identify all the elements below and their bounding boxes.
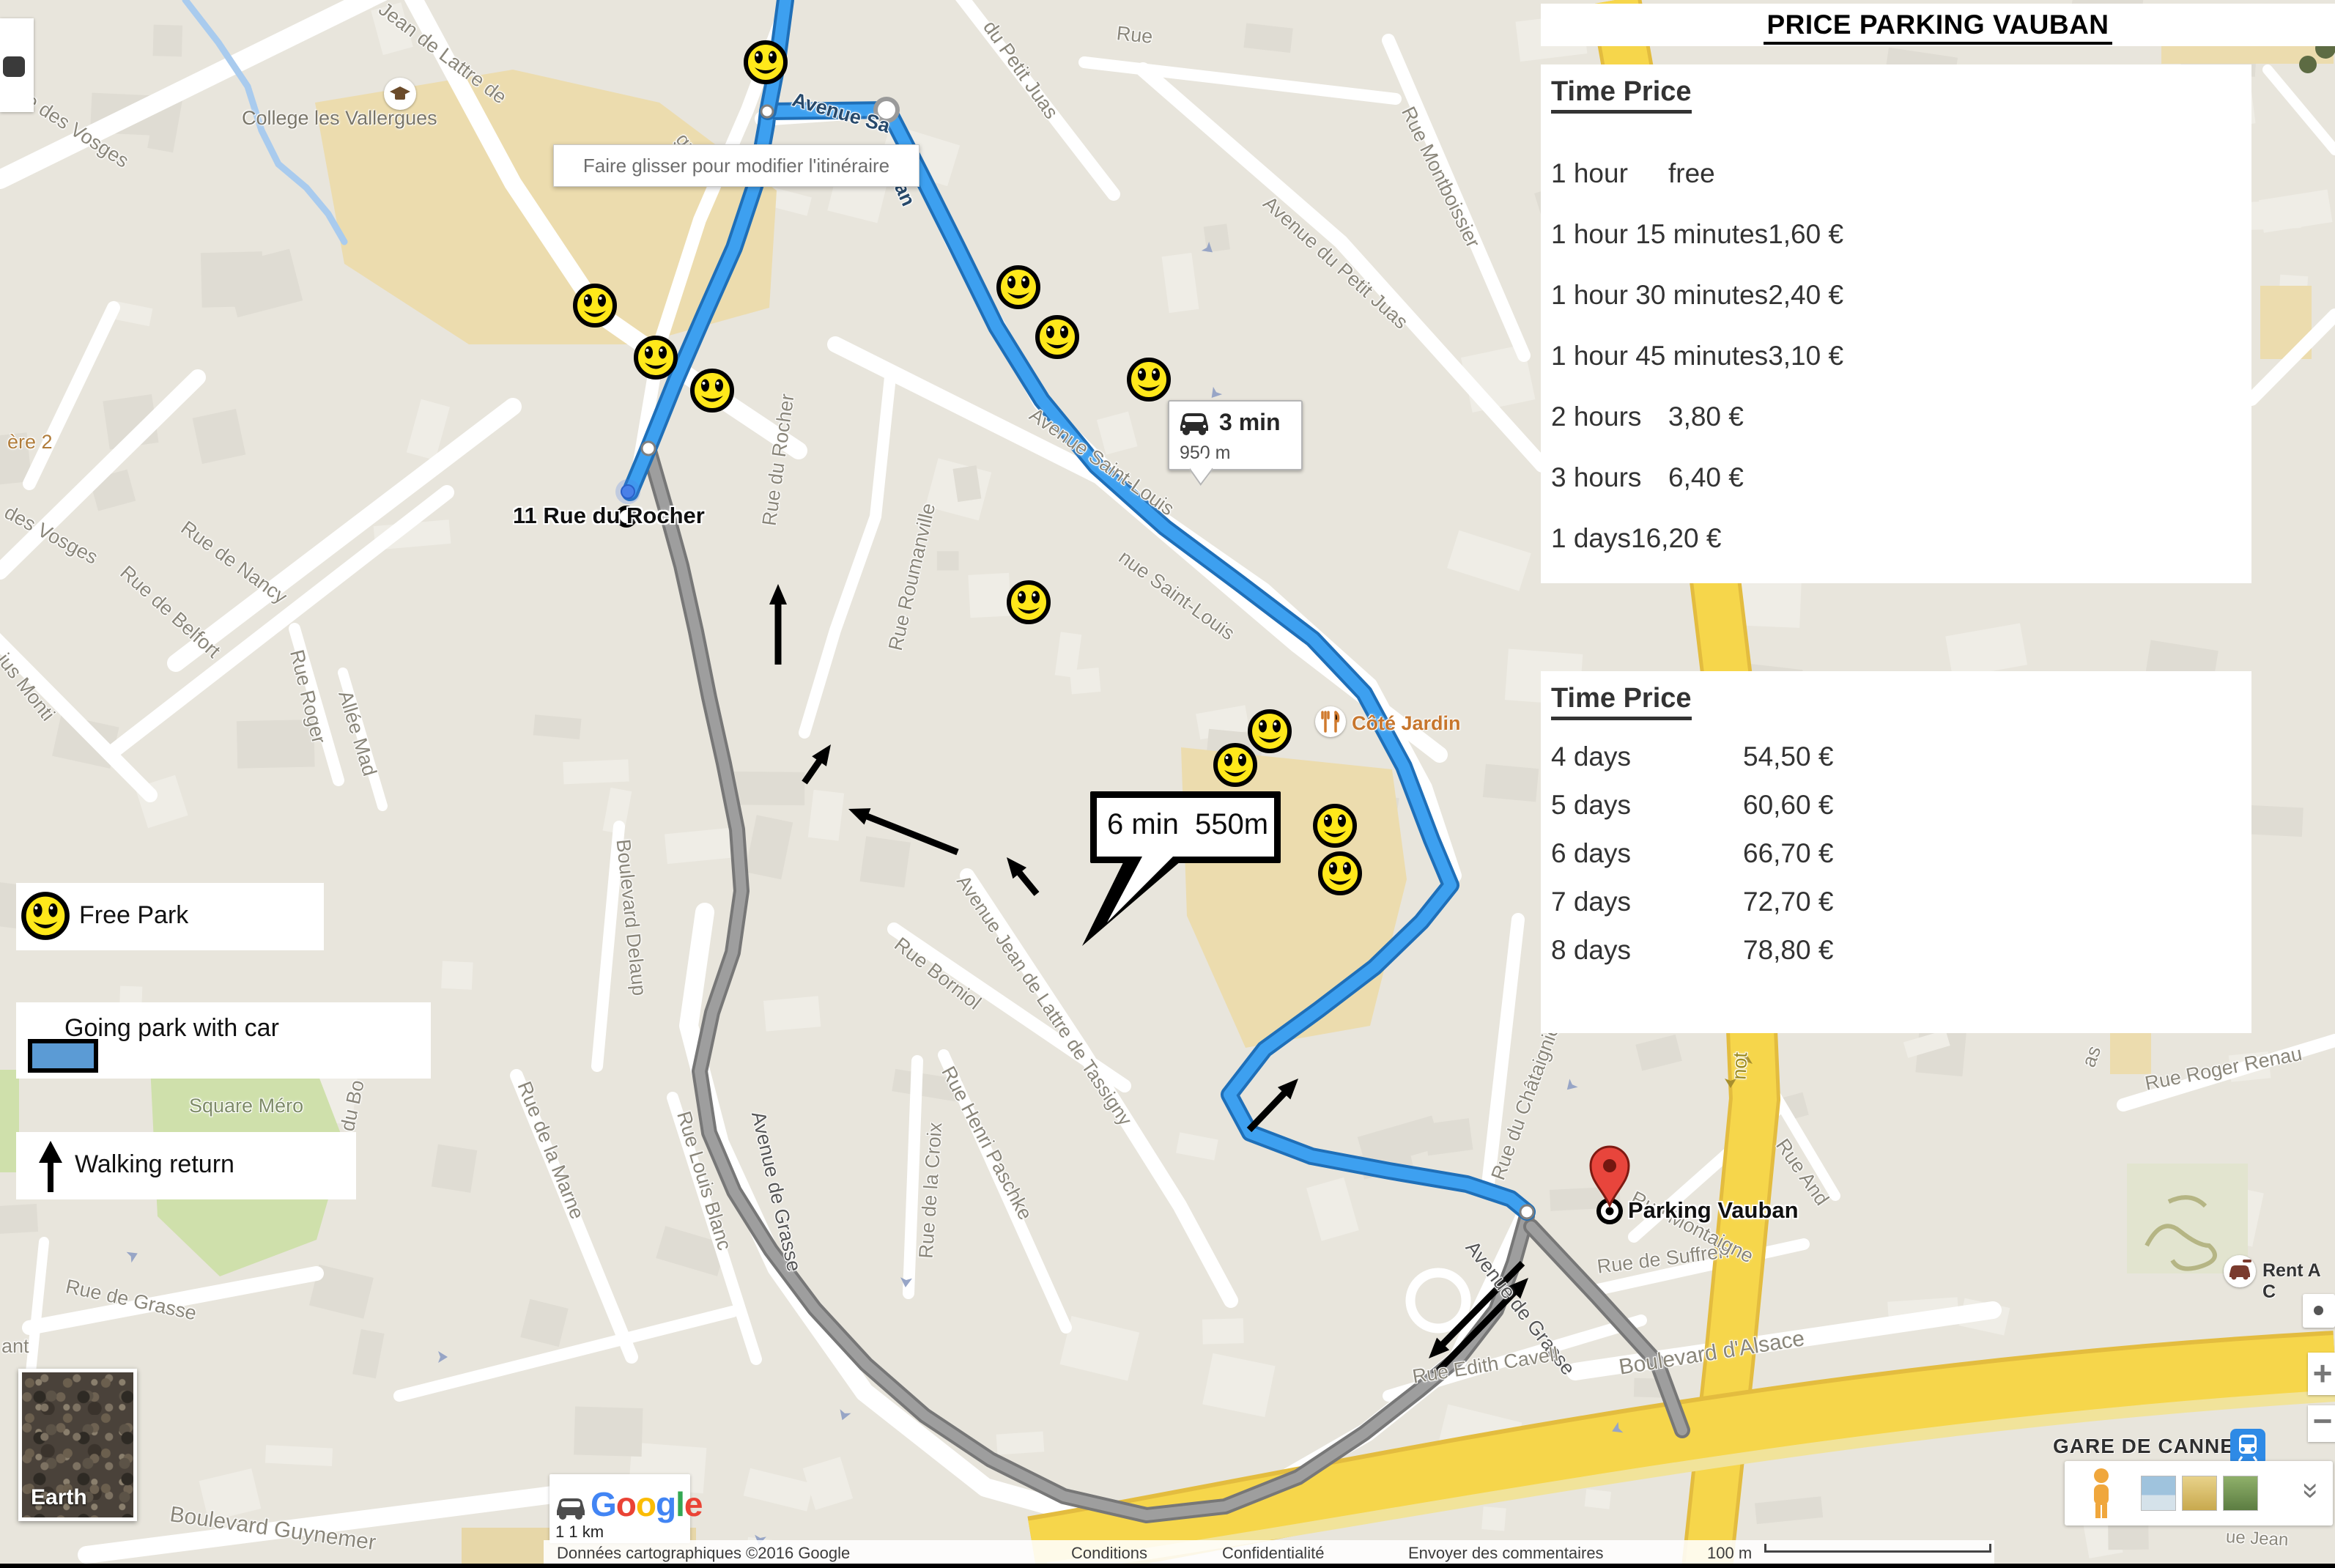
drive-time-value: 3 min <box>1219 409 1281 436</box>
legend-car-route-swatch <box>28 1039 98 1073</box>
price-row-time: 1 hour 15 minutes <box>1551 219 1768 249</box>
free-park-smiley-marker <box>633 335 678 380</box>
school-icon[interactable] <box>384 78 416 110</box>
drive-distance-value: 950 m <box>1180 443 1230 464</box>
zoom-out-button[interactable]: − <box>2308 1405 2335 1442</box>
mini-scale-label: 1 1 km <box>555 1523 604 1542</box>
street-label: not <box>1728 1051 1753 1080</box>
price-panel-title: PRICE PARKING VAUBAN <box>1541 4 2335 46</box>
photo-thumbnail-sea[interactable] <box>2141 1476 2176 1511</box>
price-row-time: 2 hours <box>1551 402 1641 432</box>
price-row-time: 8 days <box>1551 935 1631 965</box>
collapse-chevron-icon[interactable]: « <box>2293 1482 2325 1498</box>
price-row-time: 1 hour <box>1551 158 1628 188</box>
price-row: 1 hourfree <box>1551 158 2246 219</box>
attribution-bar: Données cartographiques ©2016 Google Con… <box>544 1540 1994 1565</box>
price-title-text: PRICE PARKING VAUBAN <box>1764 10 2112 45</box>
drive-time-tooltip: 3 min 950 m <box>1168 400 1303 470</box>
price-table-hours: Time Price 1 hourfree1 hour 15 minutes1,… <box>1541 64 2251 583</box>
legend-walking-return: Walking return <box>16 1132 356 1199</box>
free-park-smiley-marker <box>1312 803 1358 848</box>
price-row-value: 72,70 € <box>1743 887 1833 917</box>
price-row: 7 days72,70 € <box>1551 887 2246 935</box>
price-row-time: 1 days <box>1551 523 1631 553</box>
price-row: 2 hours3,80 € <box>1551 402 2246 462</box>
free-park-smiley-marker <box>1213 742 1258 788</box>
price-row: 6 days66,70 € <box>1551 838 2246 887</box>
college-label: College les Vallergues <box>242 107 437 130</box>
walk-time-tooltip: 6 min 550m <box>1090 791 1281 863</box>
price-row-time: 1 hour 45 minutes <box>1551 341 1768 371</box>
street-label: Square Méro <box>189 1095 303 1117</box>
side-panel-glyph <box>3 56 25 77</box>
bottom-border <box>0 1564 2335 1568</box>
price-row-value: 60,60 € <box>1743 790 1833 821</box>
price-row-value: 3,10 € <box>1768 341 1843 371</box>
terms-link[interactable]: Conditions <box>1071 1544 1147 1563</box>
price-row-value: 6,40 € <box>1668 462 1744 493</box>
free-park-smiley-marker <box>1126 357 1172 402</box>
price-row-time: 6 days <box>1551 838 1631 868</box>
free-park-smiley-marker <box>996 265 1041 310</box>
price-row-time: 3 hours <box>1551 462 1641 492</box>
traffic-car-icon <box>554 1493 589 1521</box>
pegman-icon[interactable] <box>2087 1467 2116 1520</box>
walk-time-value: 6 min 550m <box>1107 808 1268 841</box>
earth-label: Earth <box>31 1485 87 1510</box>
rent-a-car-icon[interactable] <box>2224 1255 2256 1287</box>
map-copyright: Données cartographiques ©2016 Google <box>557 1544 850 1563</box>
street-label: ant <box>1 1335 29 1358</box>
scale-bar <box>1764 1544 1991 1553</box>
price-row-value: 54,50 € <box>1743 742 1833 772</box>
map-canvas[interactable]: Rue des Vosgesdes Vosgesère 2Rue de Nanc… <box>0 0 2335 1568</box>
price-row-time: 1 hour 30 minutes <box>1551 280 1768 310</box>
price-table-hours-header: Time Price <box>1551 76 1692 114</box>
earth-view-toggle[interactable]: Earth <box>18 1369 137 1521</box>
price-row-time: 5 days <box>1551 790 1631 820</box>
privacy-link[interactable]: Confidentialité <box>1222 1544 1324 1563</box>
price-row: 3 hours6,40 € <box>1551 462 2246 523</box>
legend-walking-return-label: Walking return <box>75 1150 234 1179</box>
price-row-time: 7 days <box>1551 887 1631 917</box>
price-row: 1 hour 45 minutes3,10 € <box>1551 341 2246 402</box>
price-row-value: 3,80 € <box>1668 402 1744 432</box>
price-row: 8 days78,80 € <box>1551 935 2246 983</box>
legend-walk-arrow-icon <box>34 1138 67 1195</box>
train-station-icon[interactable] <box>2230 1429 2265 1465</box>
scale-label: 100 m <box>1707 1544 1752 1563</box>
legend-smiley-icon <box>21 891 70 941</box>
price-row-time: 4 days <box>1551 742 1631 772</box>
free-park-smiley-marker <box>1317 851 1363 896</box>
zoom-in-button[interactable]: + <box>2308 1353 2335 1395</box>
price-row-value: free <box>1668 158 1715 189</box>
drag-route-text: Faire glisser pour modifier l'itinéraire <box>583 155 889 177</box>
price-table-days-header: Time Price <box>1551 683 1692 720</box>
street-label: ue Jean <box>2225 1527 2289 1550</box>
parking-vauban-label: Parking Vauban <box>1628 1197 1799 1224</box>
street-label: ère 2 <box>7 431 53 454</box>
price-row: 1 hour 30 minutes2,40 € <box>1551 280 2246 341</box>
google-logo-card: Google 1 1 km <box>549 1474 690 1543</box>
price-row-value: 2,40 € <box>1768 280 1843 310</box>
photo-thumbnail-trees[interactable] <box>2223 1476 2258 1511</box>
price-row-value: 16,20 € <box>1631 523 1721 553</box>
legend-car-route: Going park with car <box>16 1002 431 1079</box>
free-park-smiley-marker <box>743 40 788 85</box>
drag-route-tooltip: Faire glisser pour modifier l'itinéraire <box>553 144 919 187</box>
gare-de-cannes-label: GARE DE CANNES <box>2053 1435 2249 1458</box>
price-row-value: 78,80 € <box>1743 935 1833 966</box>
price-table-days: Time Price 4 days54,50 €5 days60,60 €6 d… <box>1541 671 2251 1033</box>
street-label: Rue <box>1115 22 1154 48</box>
side-panel-stub[interactable] <box>0 18 34 112</box>
legend-free-park-label: Free Park <box>79 901 188 930</box>
legend-free-park: Free Park <box>16 883 324 950</box>
photo-thumbnail-sand[interactable] <box>2182 1476 2217 1511</box>
price-row: 1 hour 15 minutes1,60 € <box>1551 219 2246 280</box>
price-row: 5 days60,60 € <box>1551 790 2246 838</box>
streetview-panel: « <box>2065 1461 2333 1526</box>
origin-address-label: 11 Rue du Rocher <box>513 503 705 529</box>
car-icon <box>1178 410 1210 437</box>
price-row-value: 66,70 € <box>1743 838 1833 869</box>
free-park-smiley-marker <box>689 368 735 413</box>
restaurant-label: Côté Jardin <box>1352 712 1461 735</box>
feedback-link[interactable]: Envoyer des commentaires <box>1408 1544 1604 1563</box>
price-row-value: 1,60 € <box>1768 219 1843 249</box>
free-park-smiley-marker <box>1035 314 1080 360</box>
my-location-button[interactable] <box>2303 1294 2335 1328</box>
free-park-smiley-marker <box>572 283 618 328</box>
restaurant-icon[interactable] <box>1315 706 1346 737</box>
walk-tooltip-tail <box>1075 855 1199 950</box>
current-location-dot <box>621 485 634 498</box>
price-row: 1 days16,20 € <box>1551 523 2246 584</box>
price-row: 4 days54,50 € <box>1551 742 2246 790</box>
free-park-smiley-marker <box>1006 580 1051 625</box>
google-logo[interactable]: Google <box>591 1484 702 1524</box>
